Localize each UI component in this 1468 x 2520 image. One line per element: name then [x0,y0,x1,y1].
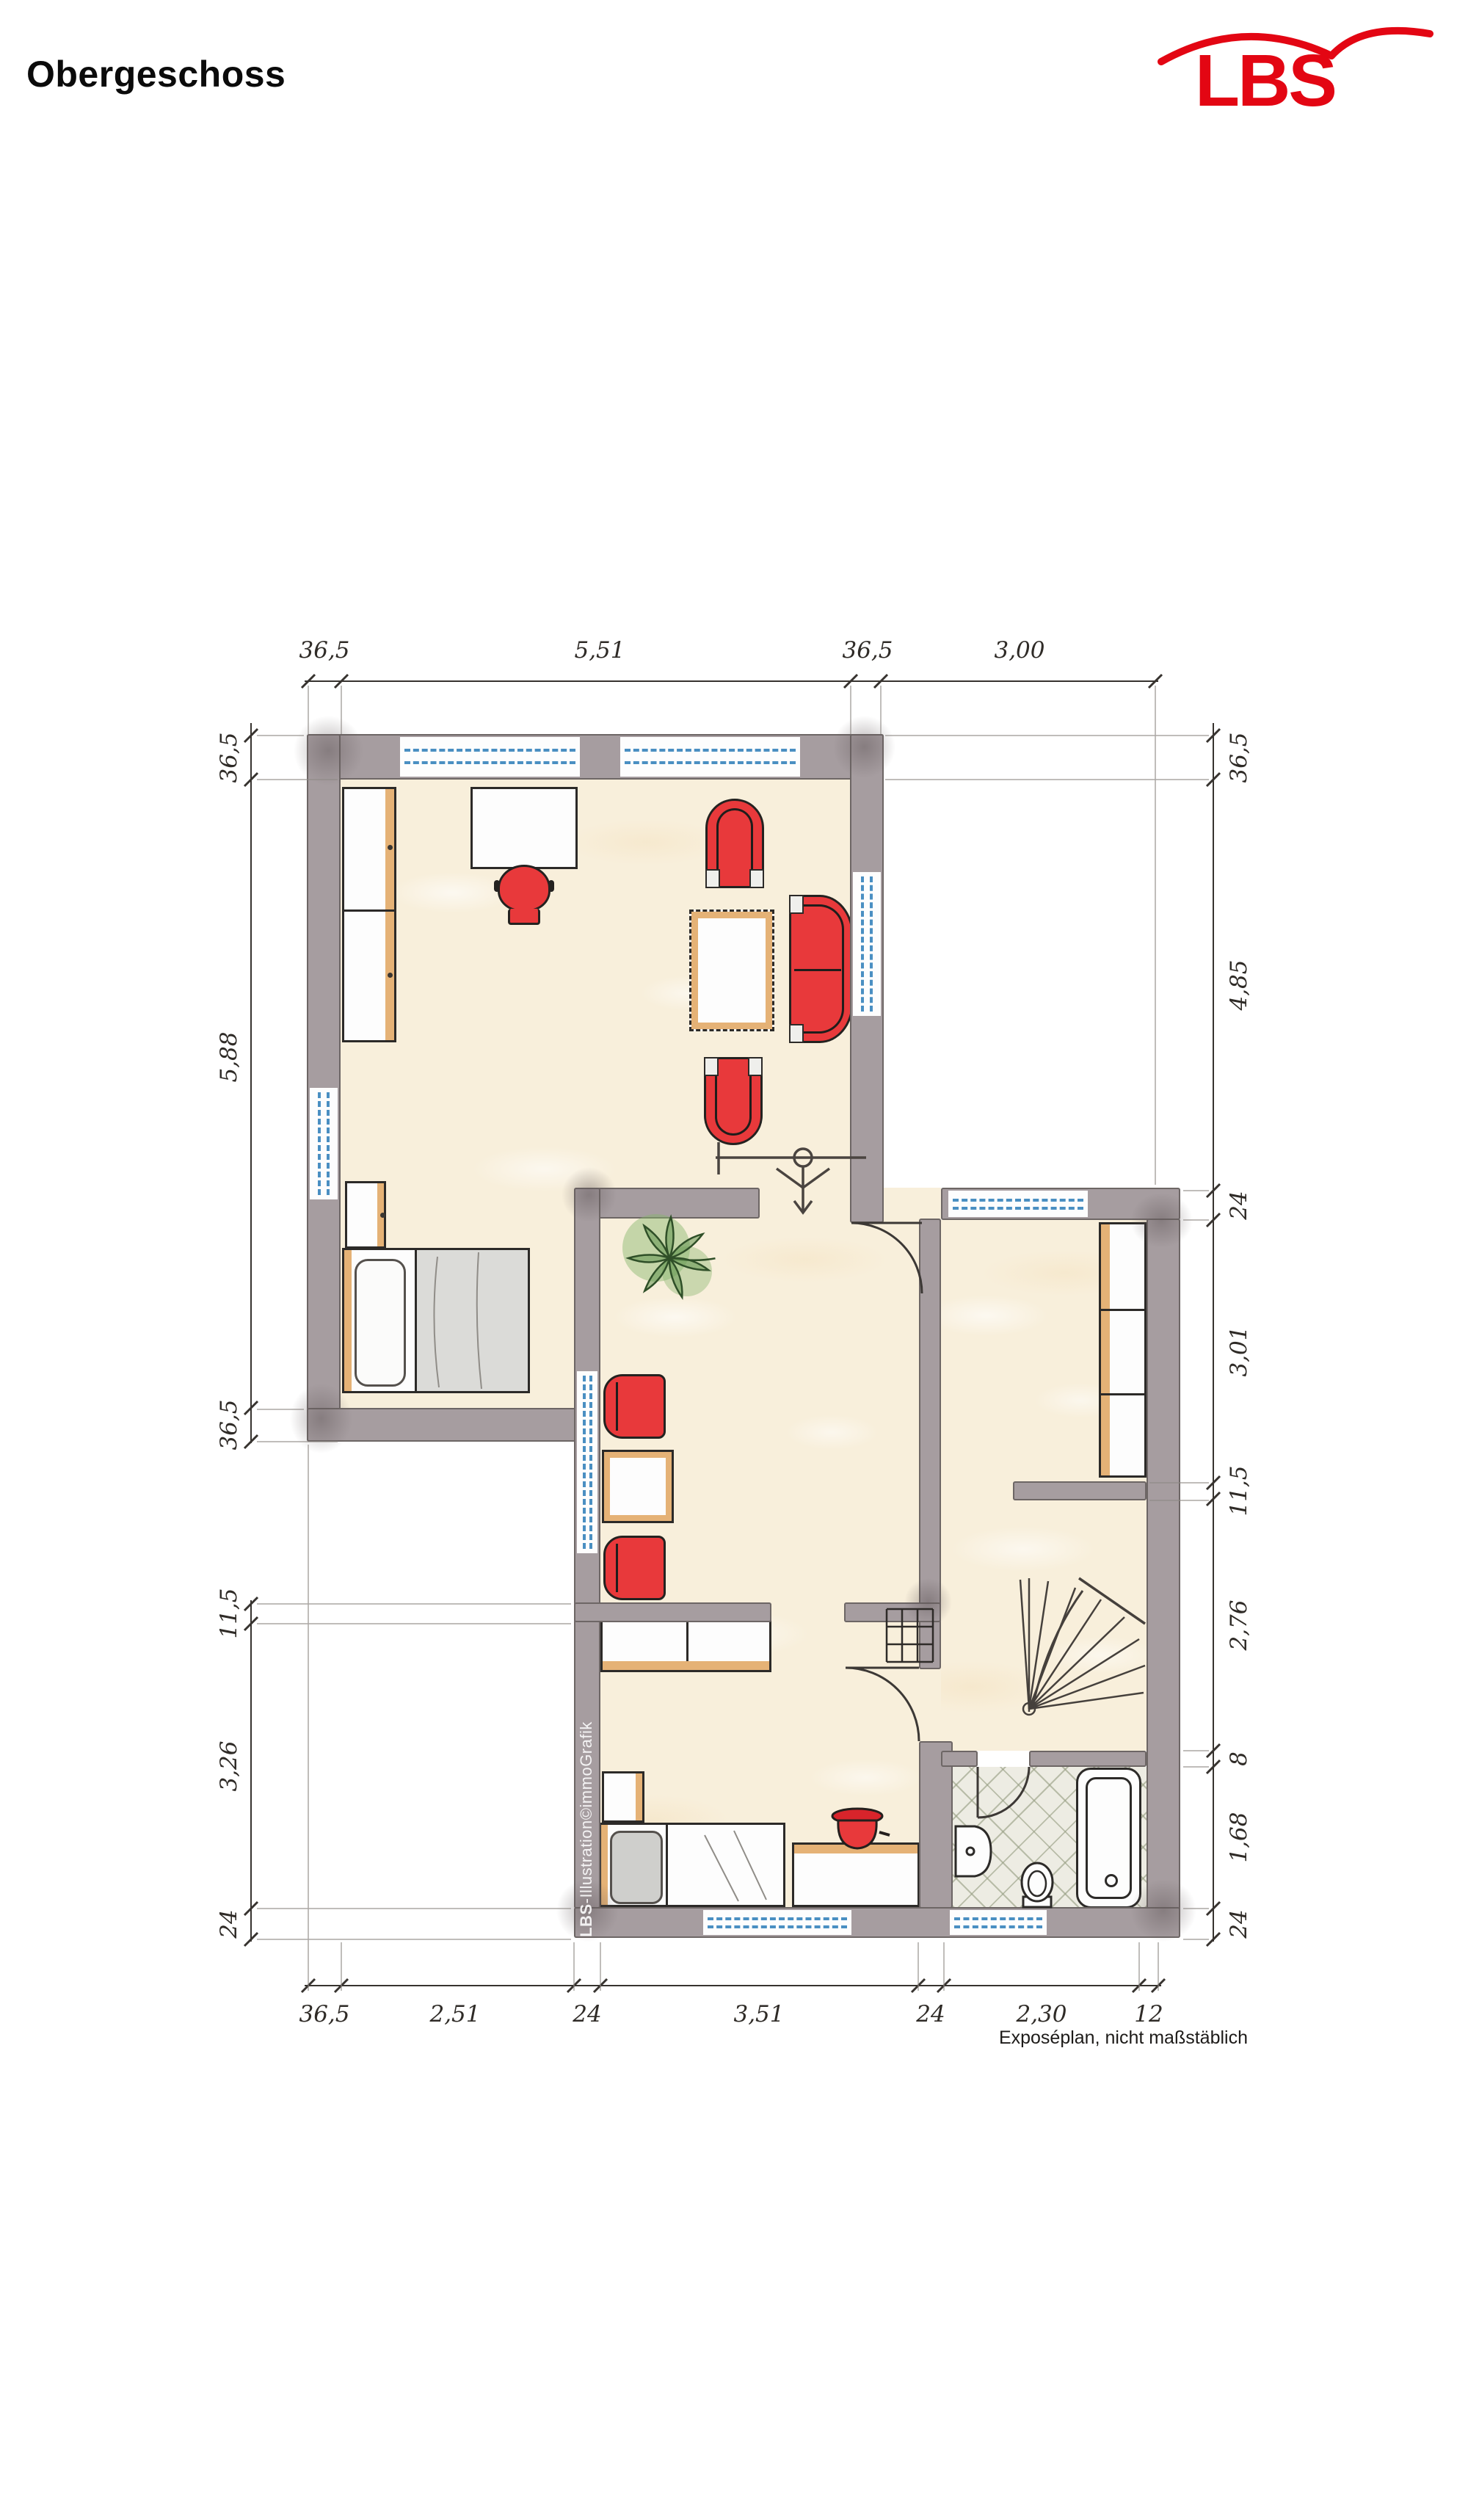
dim-label: 11,5 [1226,1465,1252,1516]
lbs-logo-text: LBS [1195,44,1335,117]
dim-label: 36,5 [1226,732,1252,782]
desk-icon [792,1842,920,1907]
window [853,872,881,1016]
page-title: Obergeschoss [26,53,286,95]
dim-label: 24 [573,2001,601,2027]
bed-icon [599,1823,785,1907]
floorplan-page: Obergeschoss LBS [0,0,1468,2520]
nightstand-icon [602,1771,644,1823]
dim-label: 2,51 [429,2001,480,2027]
footnote: Exposéplan, nicht maßstäblich [999,2027,1248,2049]
dim-label: 24 [216,1909,242,1938]
sofa-icon [789,895,854,1043]
dim-label: 8 [1226,1751,1252,1766]
armchair-icon [704,1057,763,1145]
bed-icon [342,1248,530,1393]
dim-label: 24 [1226,1191,1252,1219]
office-chair-icon [498,865,550,912]
window [310,1088,338,1199]
dim-label: 3,26 [216,1740,242,1791]
window [400,737,580,777]
wall [574,1602,771,1622]
window [703,1910,851,1935]
dim-label: 3,51 [733,2001,784,2027]
wall [574,1907,1180,1938]
side-table-icon [602,1450,674,1523]
window [577,1371,597,1553]
dim-label: 2,30 [1016,2001,1067,2027]
dim-label: 1,68 [1226,1812,1252,1862]
armchair-icon [705,799,764,888]
watermark-rest: -Illustration©immoGrafik [577,1721,595,1903]
nightstand-icon [345,1181,386,1249]
dim-label: 24 [1226,1909,1252,1938]
dim-label: 3,00 [994,637,1044,664]
bathtub-icon [1076,1768,1141,1909]
dim-label: 36,5 [842,637,893,664]
wall [941,1751,978,1767]
dim-label: 24 [916,2001,945,2027]
dim-label: 36,5 [216,1399,242,1450]
window [950,1910,1047,1935]
dim-label: 5,88 [216,1031,242,1082]
armchair-icon [603,1374,666,1439]
wall [1029,1751,1147,1767]
window [948,1191,1088,1217]
armchair-icon [603,1536,666,1600]
dim-label: 36,5 [299,2001,349,2027]
dim-label: 36,5 [299,637,349,664]
dim-label: 5,51 [574,637,625,664]
dim-label: 4,85 [1226,959,1252,1010]
coffee-table-icon [689,909,774,1031]
sideboard-icon [600,1619,771,1672]
watermark: LBS-Illustration©immoGrafik [577,1721,596,1937]
dim-label: 36,5 [216,732,242,782]
wardrobe-icon [1099,1222,1147,1478]
lbs-logo: LBS [1157,13,1436,123]
wall [1013,1481,1147,1500]
dim-label: 2,76 [1226,1599,1252,1650]
chair-base-icon [508,909,540,925]
wall [1147,1219,1180,1938]
dim-label: 3,01 [1226,1326,1252,1376]
dim-label: 11,5 [216,1588,242,1638]
wardrobe-icon [342,787,396,1042]
watermark-bold: LBS [577,1903,595,1937]
dim-label: 12 [1134,2001,1163,2027]
window [620,737,800,777]
desk-icon [470,787,578,869]
